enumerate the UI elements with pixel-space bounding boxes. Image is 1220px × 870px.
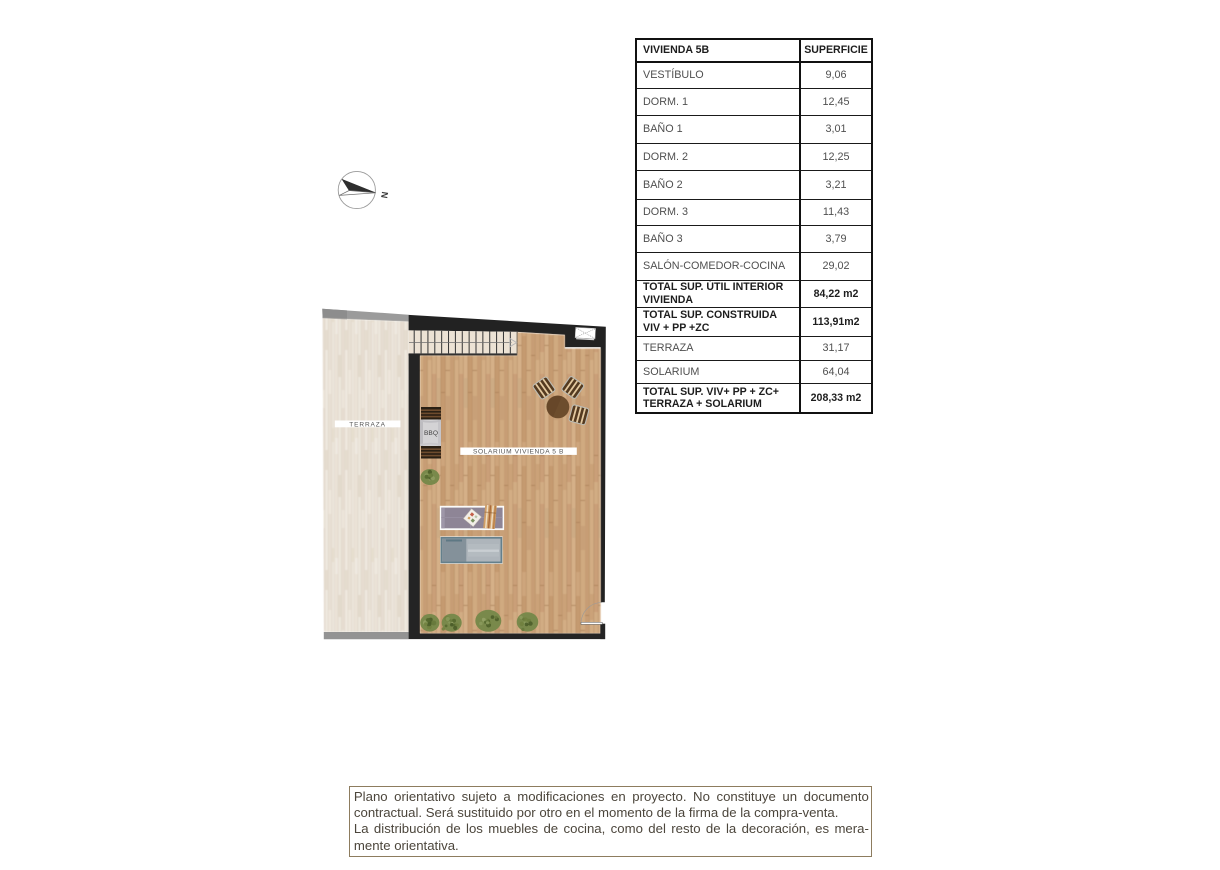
svg-text:N: N [379,191,390,199]
svg-text:SOLARIUM VIVIENDA 5 B: SOLARIUM VIVIENDA 5 B [473,449,564,456]
svg-text:BBQ: BBQ [424,430,438,437]
svg-text:TERRAZA: TERRAZA [349,421,386,428]
